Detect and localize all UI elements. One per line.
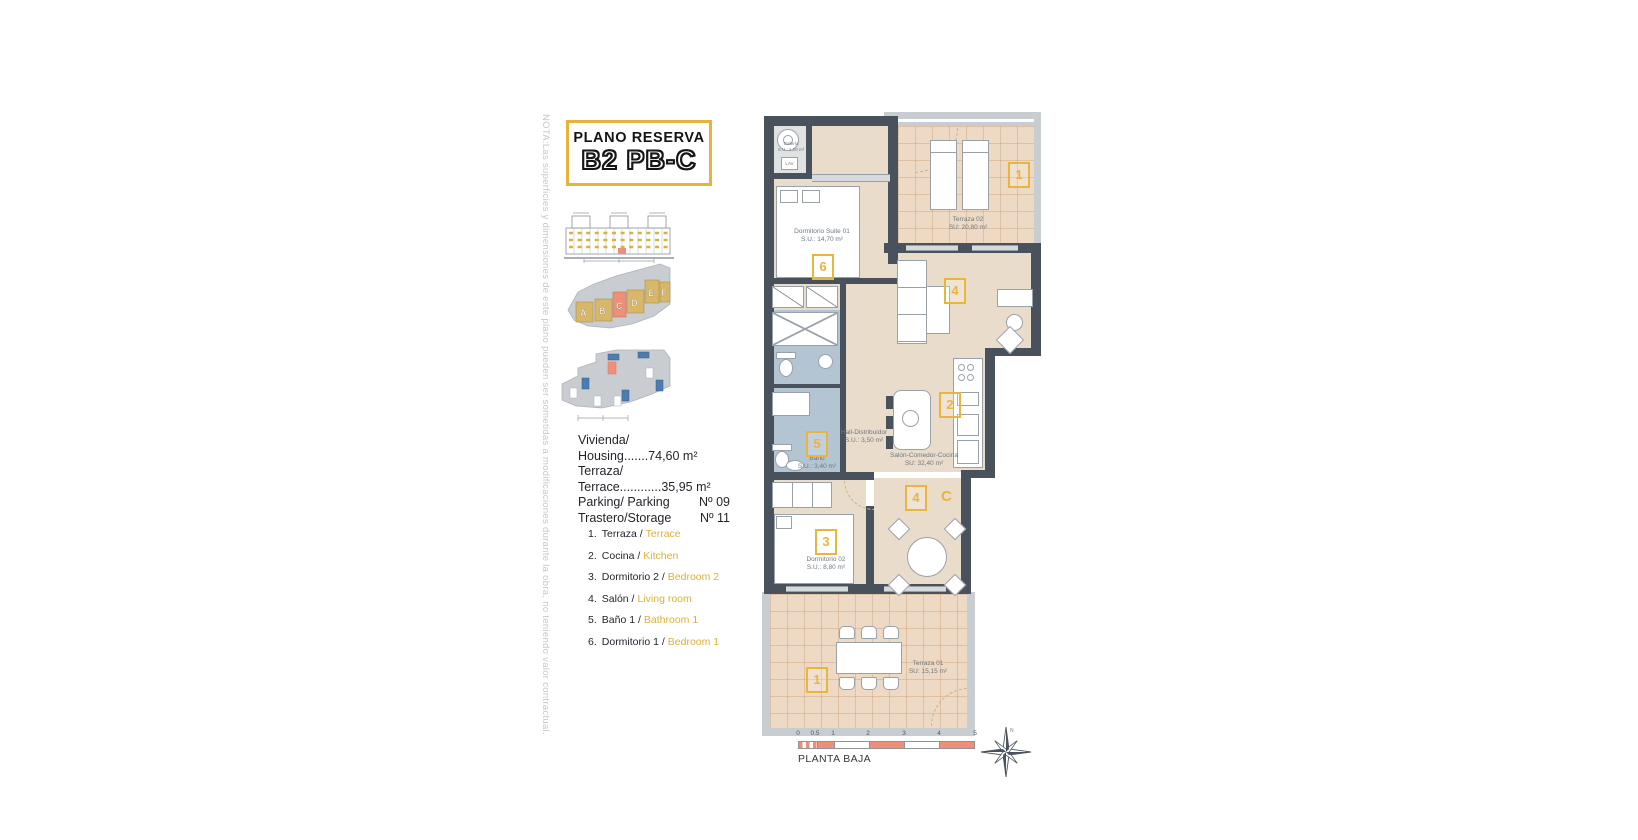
- room-label-dormitorio02: Dormitorio 02S.U.: 8,80 m²: [786, 556, 866, 573]
- block-letter-f: F: [661, 288, 667, 298]
- legend-item-bathroom1: 5.Baño 1 /Bathroom 1: [588, 614, 719, 626]
- terrace-border: [762, 592, 770, 736]
- margin-disclaimer-note: NOTA:Las superficies y dimensiones de es…: [540, 114, 551, 670]
- legend-en: Kitchen: [643, 550, 678, 562]
- scale-segment: [939, 742, 974, 748]
- room-label-hall: Hall-DistribuidorS.U.: 3,50 m²: [826, 429, 902, 446]
- bathtub: [772, 392, 810, 416]
- hob-burner-icon: [958, 364, 965, 371]
- title-box: PLANO RESERVA B2 PB-C: [566, 120, 712, 186]
- legend-number: 2.: [588, 550, 597, 562]
- wall-segment: [764, 173, 812, 179]
- surfaces-info: Vivienda/ Housing.......74,60 m² Terraza…: [578, 433, 730, 526]
- scale-segment: [799, 742, 817, 748]
- legend-en: Bathroom 1: [644, 614, 698, 626]
- terrace-chair: [861, 626, 877, 639]
- wall-segment: [764, 384, 846, 388]
- legend-en: Bedroom 1: [668, 636, 719, 648]
- shower-tray: [772, 312, 838, 346]
- room-legend: 1.Terraza /Terrace 2.Cocina /Kitchen 3.D…: [588, 528, 719, 657]
- legend-es: Salón /: [602, 593, 635, 605]
- washbasin: [818, 354, 833, 369]
- room-label-terraza01: Terraza 01SU: 15,15 m²: [894, 660, 962, 677]
- info-label: Terraza/ Terrace............35,95 m²: [578, 464, 730, 495]
- window: [786, 586, 848, 592]
- legend-es: Terraza /: [602, 528, 643, 540]
- legend-en: Bedroom 2: [668, 571, 719, 583]
- legend-number: 4.: [588, 593, 597, 605]
- room-name: Hall-Distribuidor: [826, 429, 902, 437]
- section-mark-c: C: [941, 488, 952, 505]
- elevation-diagram: [564, 210, 674, 264]
- terrace-chair: [839, 626, 855, 639]
- block-letter-d: D: [631, 298, 638, 308]
- terrace-border: [1034, 112, 1041, 247]
- sun-lounger: [962, 140, 989, 210]
- terrace-chair: [861, 677, 877, 690]
- terrace-chair: [883, 626, 899, 639]
- info-row-parking: Parking/ ParkingNº 09: [578, 495, 730, 511]
- compass-north-label: N: [1010, 728, 1014, 734]
- toilet-tank: [776, 352, 796, 359]
- legend-item-terrace: 1.Terraza /Terrace: [588, 528, 719, 540]
- laundry-box: LAV: [781, 157, 798, 170]
- legend-item-bedroom1: 6.Dormitorio 1 /Bedroom 1: [588, 636, 719, 648]
- room-area: S.U.: 3,50 m²: [826, 437, 902, 445]
- room-label-bano: BañoS.U.: 3,40 m²: [792, 455, 842, 472]
- island-sink: [902, 410, 919, 427]
- tag-salon: 4: [944, 278, 966, 304]
- room-label-terraza02: Terraza 02SU: 20,80 m²: [926, 216, 1010, 233]
- sun-lounger: [930, 140, 957, 210]
- tag-kitchen: 2: [939, 392, 961, 418]
- legend-es: Dormitorio 1 /: [602, 636, 665, 648]
- hob-burner-icon: [958, 374, 965, 381]
- terrace-table: [836, 642, 902, 674]
- info-label: Trastero/Storage: [578, 511, 671, 527]
- room-area: SU: 32,40 m²: [870, 460, 978, 468]
- scale-segment: [834, 742, 869, 748]
- pillow: [802, 190, 820, 203]
- legend-es: Cocina /: [602, 550, 641, 562]
- plan-sheet: NOTA:Las superficies y dimensiones de es…: [0, 0, 1638, 840]
- tag-suite: 6: [812, 254, 834, 280]
- room-area: SU: 20,80 m²: [926, 224, 1010, 232]
- room-name: Salón-Comedor-Cocina: [870, 452, 978, 460]
- scale-tick: 5: [973, 730, 977, 737]
- info-row-terrace: Terraza/ Terrace............35,95 m²: [578, 464, 730, 495]
- wall-segment: [866, 506, 874, 584]
- info-row-storage: Trastero/StorageNº 11: [578, 511, 730, 527]
- legend-es: Dormitorio 2 /: [602, 571, 665, 583]
- block-letter-a: A: [580, 308, 587, 318]
- floor-caption: PLANTA BAJA: [798, 753, 871, 765]
- info-value: Nº 11: [700, 511, 730, 527]
- room-name: Terraza 02: [926, 216, 1010, 224]
- toilet-tank: [772, 444, 792, 451]
- title-kicker: PLANO RESERVA: [569, 130, 709, 146]
- wardrobe-cabinet: [806, 286, 838, 308]
- wall-segment: [985, 348, 995, 478]
- terrace-chair: [883, 677, 899, 690]
- room-name: Dormitorio 02: [786, 556, 866, 564]
- tag-bano: 5: [806, 431, 828, 457]
- room-area: S.U.: 3,40 m²: [792, 463, 842, 471]
- scale-tick: 4: [937, 730, 941, 737]
- scale-segment: [869, 742, 904, 748]
- room-label-galeria: GaleríaS.U.: 1,00 m²: [770, 141, 812, 153]
- wardrobe-cabinet: [772, 286, 804, 308]
- window: [906, 245, 958, 251]
- room-area: S.U.: 8,80 m²: [786, 564, 866, 572]
- scale-tick: 3: [902, 730, 906, 737]
- compass-rose-icon: N: [980, 726, 1032, 778]
- pillow: [780, 190, 798, 203]
- scale-tick: 0.5: [810, 730, 819, 737]
- scale-bar: [798, 741, 975, 749]
- tag-terraza01: 1: [806, 667, 828, 693]
- dining-table-round: [907, 537, 947, 577]
- block-letter-c: C: [616, 301, 623, 311]
- scale-segment: [904, 742, 939, 748]
- legend-es: Baño 1 /: [602, 614, 641, 626]
- info-label: Vivienda/ Housing.......74,60 m²: [578, 433, 730, 464]
- room-area: SU: 15,15 m²: [894, 668, 962, 676]
- room-area: S.U.: 14,70 m²: [780, 236, 864, 244]
- info-value: Nº 09: [699, 495, 730, 511]
- room-label-salon: Salón-Comedor-CocinaSU: 32,40 m²: [870, 452, 978, 469]
- room-name: Terraza 01: [894, 660, 962, 668]
- unit-code: B2 PB-C: [569, 146, 709, 174]
- legend-item-kitchen: 2.Cocina /Kitchen: [588, 550, 719, 562]
- sofa: [897, 260, 927, 344]
- window: [972, 245, 1018, 251]
- legend-item-bedroom2: 3.Dormitorio 2 /Bedroom 2: [588, 571, 719, 583]
- scale-tick: 0: [796, 730, 800, 737]
- legend-number: 6.: [588, 636, 597, 648]
- block-letter-e: E: [648, 288, 654, 298]
- legend-en: Living room: [637, 593, 691, 605]
- closet: [772, 482, 832, 508]
- room-area: S.U.: 1,00 m²: [770, 147, 812, 153]
- tag-comedor: 4: [905, 485, 927, 511]
- bar-stool: [886, 396, 893, 409]
- terrace-chair: [839, 677, 855, 690]
- info-row-housing: Vivienda/ Housing.......74,60 m²: [578, 433, 730, 464]
- pillow: [776, 516, 792, 529]
- legend-number: 1.: [588, 528, 597, 540]
- tag-terraza02: 1: [1008, 162, 1030, 188]
- info-label: Parking/ Parking: [578, 495, 670, 511]
- scale-segment: [817, 742, 835, 748]
- room-label-suite: Dormitorio Suite 01S.U.: 14,70 m²: [780, 228, 864, 245]
- toilet-bowl: [779, 359, 793, 377]
- tag-dormitorio02: 3: [815, 529, 837, 555]
- legend-en: Terrace: [646, 528, 681, 540]
- scale-tick: 1: [831, 730, 835, 737]
- wall-segment: [764, 116, 774, 594]
- legend-number: 3.: [588, 571, 597, 583]
- sotano-diagram: SÓTANO: [558, 342, 672, 426]
- legend-item-livingroom: 4.Salón /Living room: [588, 593, 719, 605]
- hob-burner-icon: [967, 364, 974, 371]
- desk: [997, 289, 1033, 307]
- window: [812, 174, 890, 182]
- hob-burner-icon: [967, 374, 974, 381]
- bar-stool: [886, 416, 893, 429]
- room-name: Dormitorio Suite 01: [780, 228, 864, 236]
- scale-tick: 2: [866, 730, 870, 737]
- lav-label: LAV: [785, 161, 793, 166]
- siteplan-diagram: A B C D E F: [566, 262, 672, 334]
- block-letter-b: B: [599, 306, 606, 316]
- legend-number: 5.: [588, 614, 597, 626]
